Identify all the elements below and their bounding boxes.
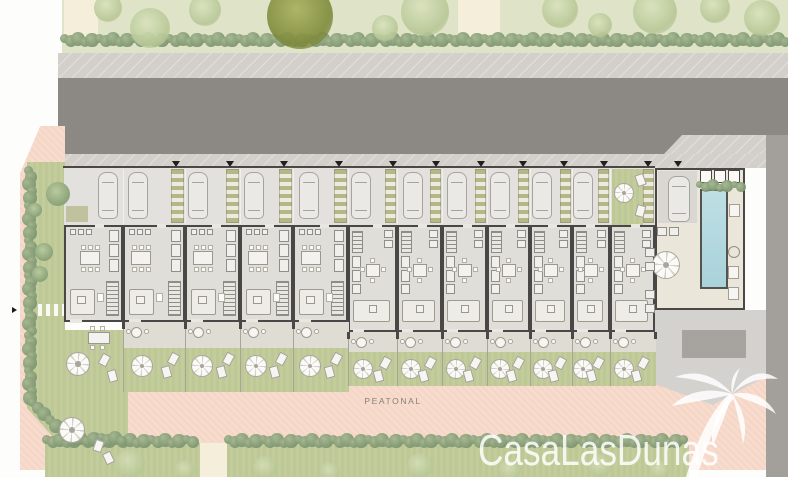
- car-outline: [573, 172, 593, 219]
- chair: [95, 267, 100, 272]
- chair: [548, 258, 553, 263]
- pergola-strip: [171, 169, 184, 223]
- kitchen-unit: [191, 229, 197, 235]
- tree-icon: [372, 15, 398, 41]
- car-outline: [188, 172, 208, 219]
- chair: [208, 267, 213, 272]
- hedge-dot: [780, 37, 788, 47]
- chair: [88, 267, 93, 272]
- kitchen-unit: [352, 284, 361, 294]
- terrace-table: [131, 327, 142, 338]
- entrance-marker: [477, 161, 485, 167]
- door-gap: [586, 224, 595, 228]
- terrace-chair: [351, 339, 356, 344]
- tree-icon: [130, 8, 170, 48]
- bath-fixture: [226, 230, 236, 242]
- door-gap: [95, 224, 104, 228]
- kitchen-unit: [517, 230, 526, 238]
- terrace-chair: [369, 339, 374, 344]
- bath-fixture: [226, 259, 236, 272]
- terrace-chair: [551, 339, 556, 344]
- garden-seat: [645, 290, 655, 299]
- kitchen-unit: [246, 229, 252, 235]
- pergola-strip: [279, 169, 292, 223]
- dining-table: [458, 264, 472, 277]
- side-table-ring: [728, 246, 740, 258]
- stairs-icon: [534, 231, 545, 253]
- coffee-table: [461, 305, 469, 313]
- parasol-icon: [299, 355, 321, 377]
- door-gap: [373, 224, 382, 228]
- planter: [66, 206, 88, 222]
- hedge-dot: [187, 436, 199, 448]
- chair: [462, 258, 467, 263]
- bath-fixture: [109, 244, 119, 257]
- wall-post: [122, 322, 125, 329]
- garden-seat: [645, 248, 655, 257]
- entrance-marker: [172, 161, 180, 167]
- kitchen-unit: [299, 229, 305, 235]
- chair: [201, 245, 206, 250]
- pergola-strip: [430, 169, 441, 223]
- pergola-strip: [643, 169, 654, 223]
- door-gap: [157, 224, 166, 228]
- dining-table: [502, 264, 516, 277]
- chair: [316, 267, 321, 272]
- kitchen-unit: [70, 229, 76, 235]
- door-gap: [418, 224, 427, 228]
- chair: [309, 267, 314, 272]
- parking-divider: [530, 169, 531, 224]
- kitchen-unit: [384, 230, 393, 238]
- parking-divider: [293, 169, 294, 224]
- bath-fixture: [109, 259, 119, 272]
- parasol-icon: [66, 352, 90, 376]
- wall-post: [347, 332, 350, 339]
- stairs-icon: [352, 231, 363, 253]
- kitchen-unit: [199, 229, 205, 235]
- chair: [548, 278, 553, 283]
- terrace-chair: [261, 329, 266, 334]
- car-outline: [351, 172, 371, 219]
- chair: [95, 245, 100, 250]
- entrance-marker: [644, 161, 652, 167]
- bath-fixture: [226, 244, 236, 257]
- pergola-strip: [475, 169, 486, 223]
- terrace-chair: [314, 329, 319, 334]
- door-gap: [631, 224, 640, 228]
- chair: [201, 267, 206, 272]
- entrance-marker: [280, 161, 288, 167]
- stairs-icon: [446, 231, 457, 253]
- chair: [302, 267, 307, 272]
- tree-icon: [115, 449, 145, 477]
- chair: [139, 245, 144, 250]
- bath-fixture: [171, 244, 181, 257]
- kitchen-unit: [642, 230, 651, 238]
- chair: [517, 267, 522, 272]
- coffee-table: [547, 305, 555, 313]
- pergola-strip: [518, 169, 529, 223]
- pergola-strip: [385, 169, 396, 223]
- sun-lounger-icon: [728, 287, 739, 300]
- chair: [496, 267, 501, 272]
- garden-seat: [657, 227, 667, 236]
- terrace-chair: [400, 339, 405, 344]
- chair: [249, 267, 254, 272]
- terrace-chair: [613, 339, 618, 344]
- tree-icon: [175, 460, 195, 477]
- stairs-icon: [401, 231, 412, 253]
- coffee-table: [136, 296, 145, 304]
- kitchen-unit: [86, 229, 92, 235]
- paving-inset: [682, 330, 746, 358]
- parking-divider: [442, 169, 443, 224]
- kitchen-unit: [559, 240, 568, 248]
- chair: [194, 245, 199, 250]
- coffee-table: [306, 296, 315, 304]
- round-table: [652, 251, 680, 279]
- tree-icon: [744, 0, 780, 36]
- entrance-marker: [519, 161, 527, 167]
- entrance-marker: [600, 161, 608, 167]
- chair: [417, 278, 422, 283]
- chair: [146, 245, 151, 250]
- chair: [263, 267, 268, 272]
- stairs-icon: [491, 231, 502, 253]
- terrace-chair: [463, 339, 468, 344]
- bath-fixture: [334, 244, 344, 257]
- tree-icon: [320, 462, 340, 477]
- terrace-chair: [445, 339, 450, 344]
- kitchen-unit: [137, 229, 143, 235]
- entrance-marker: [432, 161, 440, 167]
- chair: [417, 258, 422, 263]
- dining-table: [131, 251, 151, 265]
- terrace-chair: [188, 329, 193, 334]
- dining-table: [626, 264, 640, 277]
- terrace-chair: [575, 339, 580, 344]
- car-outline: [447, 172, 467, 219]
- dining-table: [248, 251, 268, 265]
- chair: [256, 267, 261, 272]
- chair: [452, 267, 457, 272]
- tree-icon: [253, 456, 277, 477]
- terrace-chair: [508, 339, 513, 344]
- stepping-path: [38, 304, 64, 316]
- bath-fixture: [171, 259, 181, 272]
- armchair: [218, 293, 225, 302]
- chair: [132, 245, 137, 250]
- chair: [599, 267, 604, 272]
- chair: [256, 245, 261, 250]
- chair: [139, 267, 144, 272]
- dining-table: [413, 264, 427, 277]
- dining-table: [366, 264, 380, 277]
- parasol-icon: [191, 355, 213, 377]
- kitchen-unit: [78, 229, 84, 235]
- armchair: [326, 293, 333, 302]
- chair: [506, 258, 511, 263]
- kitchen-unit: [429, 240, 438, 248]
- chair: [90, 345, 95, 350]
- chair: [381, 267, 386, 272]
- kitchen-unit: [307, 229, 313, 235]
- terrace-table: [495, 337, 506, 348]
- terrace-chair: [631, 339, 636, 344]
- chair: [578, 267, 583, 272]
- wall-post: [396, 332, 399, 339]
- kitchen-unit: [614, 284, 623, 294]
- chair: [620, 267, 625, 272]
- peatonal-label: PEATONAL: [338, 396, 448, 406]
- terrace-table: [193, 327, 204, 338]
- chair: [249, 245, 254, 250]
- bath-fixture: [279, 244, 289, 257]
- stairs-icon: [614, 231, 625, 253]
- chair: [370, 278, 375, 283]
- chair: [462, 278, 467, 283]
- chair: [81, 245, 86, 250]
- stairs-icon: [168, 281, 181, 316]
- wall-post: [529, 332, 532, 339]
- chair: [88, 245, 93, 250]
- kitchen-unit: [474, 230, 483, 238]
- site-plan-canvas: PEATONAL CasaLasDunas: [0, 0, 788, 477]
- wall-post: [292, 322, 295, 329]
- chair: [630, 278, 635, 283]
- parking-divider: [487, 169, 488, 224]
- palm-tree-icon: [656, 368, 782, 477]
- pergola-strip: [560, 169, 571, 223]
- dining-table: [193, 251, 213, 265]
- kitchen-unit: [446, 284, 455, 294]
- chair: [428, 267, 433, 272]
- coffee-table: [629, 305, 637, 313]
- armchair: [156, 293, 163, 302]
- chair: [263, 245, 268, 250]
- wall-post: [239, 322, 242, 329]
- stairs-icon: [576, 231, 587, 253]
- terrace-table: [580, 337, 591, 348]
- bath-fixture: [279, 259, 289, 272]
- coffee-table: [505, 305, 513, 313]
- kitchen-unit: [315, 229, 321, 235]
- chair: [302, 245, 307, 250]
- sun-lounger-icon: [729, 204, 740, 217]
- chair: [407, 267, 412, 272]
- chair: [538, 267, 543, 272]
- door-gap: [212, 224, 221, 228]
- dining-table: [544, 264, 558, 277]
- bath-fixture: [279, 230, 289, 242]
- parking-divider: [348, 169, 349, 224]
- tree-icon: [32, 266, 48, 282]
- coffee-table: [253, 296, 262, 304]
- terrace-table: [618, 337, 629, 348]
- garden-seat: [645, 304, 655, 313]
- door-gap: [320, 224, 329, 228]
- chair: [132, 267, 137, 272]
- terrace-table: [301, 327, 312, 338]
- kitchen-unit: [129, 229, 135, 235]
- terrace-table: [356, 337, 367, 348]
- parasol-icon: [353, 359, 373, 379]
- dining-table: [301, 251, 321, 265]
- chair: [100, 326, 105, 331]
- chair: [90, 326, 95, 331]
- parasol-icon: [59, 417, 85, 443]
- bath-fixture: [171, 230, 181, 242]
- parking-divider: [123, 169, 124, 224]
- chair: [588, 258, 593, 263]
- chair: [506, 278, 511, 283]
- pergola-strip: [334, 169, 347, 223]
- parasol-icon: [245, 355, 267, 377]
- kitchen-unit: [474, 240, 483, 248]
- terrace-table: [248, 327, 259, 338]
- chair: [559, 267, 564, 272]
- chair: [208, 245, 213, 250]
- bath-fixture: [334, 230, 344, 242]
- car-outline: [668, 176, 690, 222]
- door-gap: [463, 224, 472, 228]
- door-gap: [548, 224, 557, 228]
- garden-table: [88, 332, 110, 344]
- kitchen-unit: [401, 284, 410, 294]
- chair: [100, 345, 105, 350]
- entrance-marker: [674, 161, 682, 167]
- coffee-table: [369, 305, 377, 313]
- kitchen-unit: [576, 284, 585, 294]
- tree-icon: [35, 243, 53, 261]
- terrace-chair: [490, 339, 495, 344]
- sun-lounger-icon: [728, 266, 739, 279]
- wall-post: [184, 322, 187, 329]
- kitchen-unit: [384, 240, 393, 248]
- kitchen-unit: [145, 229, 151, 235]
- chair: [630, 258, 635, 263]
- parking-divider: [397, 169, 398, 224]
- chair: [360, 267, 365, 272]
- kitchen-unit: [254, 229, 260, 235]
- terrace-chair: [144, 329, 149, 334]
- parking-divider: [185, 169, 186, 224]
- car-outline: [490, 172, 510, 219]
- door-gap: [70, 319, 82, 323]
- terrace-chair: [206, 329, 211, 334]
- terrace-table: [405, 337, 416, 348]
- kitchen-unit: [642, 240, 651, 248]
- tree-icon: [28, 203, 42, 217]
- car-outline: [128, 172, 148, 219]
- chair: [81, 267, 86, 272]
- kitchen-unit: [262, 229, 268, 235]
- door-gap: [265, 224, 274, 228]
- bottom-garden-path: [200, 443, 227, 477]
- kitchen-unit: [517, 240, 526, 248]
- hedge-dot: [736, 182, 746, 192]
- kitchen-unit: [559, 230, 568, 238]
- door-gap: [506, 224, 515, 228]
- car-outline: [98, 172, 118, 219]
- armchair: [97, 293, 104, 302]
- terrace-chair: [418, 339, 423, 344]
- car-outline: [299, 172, 319, 219]
- entrance-marker: [389, 161, 397, 167]
- terrace-chair: [593, 339, 598, 344]
- bath-fixture: [109, 230, 119, 242]
- parasol-icon: [614, 183, 634, 203]
- terrace-chair: [533, 339, 538, 344]
- kitchen-unit: [491, 284, 500, 294]
- parking-divider: [240, 169, 241, 224]
- chair: [309, 245, 314, 250]
- chair: [316, 245, 321, 250]
- tree-icon: [407, 453, 433, 477]
- terrace-chair: [126, 329, 131, 334]
- kitchen-unit: [534, 284, 543, 294]
- kitchen-unit: [597, 240, 606, 248]
- terrace-chair: [296, 329, 301, 334]
- entrance-marker: [226, 161, 234, 167]
- garden-seat: [669, 227, 679, 236]
- parasol-icon: [131, 355, 153, 377]
- bath-fixture: [334, 259, 344, 272]
- wall-post: [441, 332, 444, 339]
- coffee-table: [198, 296, 207, 304]
- chair: [194, 267, 199, 272]
- wall-post: [571, 332, 574, 339]
- parking-divider: [610, 169, 611, 224]
- kitchen-unit: [429, 230, 438, 238]
- terrace-table: [538, 337, 549, 348]
- chair: [146, 267, 151, 272]
- stairs-icon: [106, 281, 119, 316]
- tree-icon: [588, 13, 612, 37]
- sidewalk-upper: [58, 53, 788, 78]
- chair: [473, 267, 478, 272]
- swimming-pool: [700, 189, 728, 289]
- chair: [370, 258, 375, 263]
- site-marker: [12, 307, 17, 313]
- car-outline: [403, 172, 423, 219]
- kitchen-unit: [207, 229, 213, 235]
- coffee-table: [77, 296, 86, 304]
- pergola-strip: [226, 169, 239, 223]
- wall-post: [609, 332, 612, 339]
- dining-table: [80, 251, 100, 265]
- wall-post: [654, 332, 657, 339]
- terrace-table: [450, 337, 461, 348]
- wall-post: [486, 332, 489, 339]
- terrace-chair: [243, 329, 248, 334]
- tree-icon: [46, 182, 70, 206]
- entrance-marker: [335, 161, 343, 167]
- coffee-table: [416, 305, 424, 313]
- dining-table: [584, 264, 598, 277]
- kitchen-unit: [597, 230, 606, 238]
- garden-seat: [645, 262, 655, 271]
- car-outline: [532, 172, 552, 219]
- armchair: [273, 293, 280, 302]
- pergola-strip: [598, 169, 609, 223]
- chair: [588, 278, 593, 283]
- coffee-table: [587, 305, 595, 313]
- car-outline: [244, 172, 264, 219]
- entrance-marker: [560, 161, 568, 167]
